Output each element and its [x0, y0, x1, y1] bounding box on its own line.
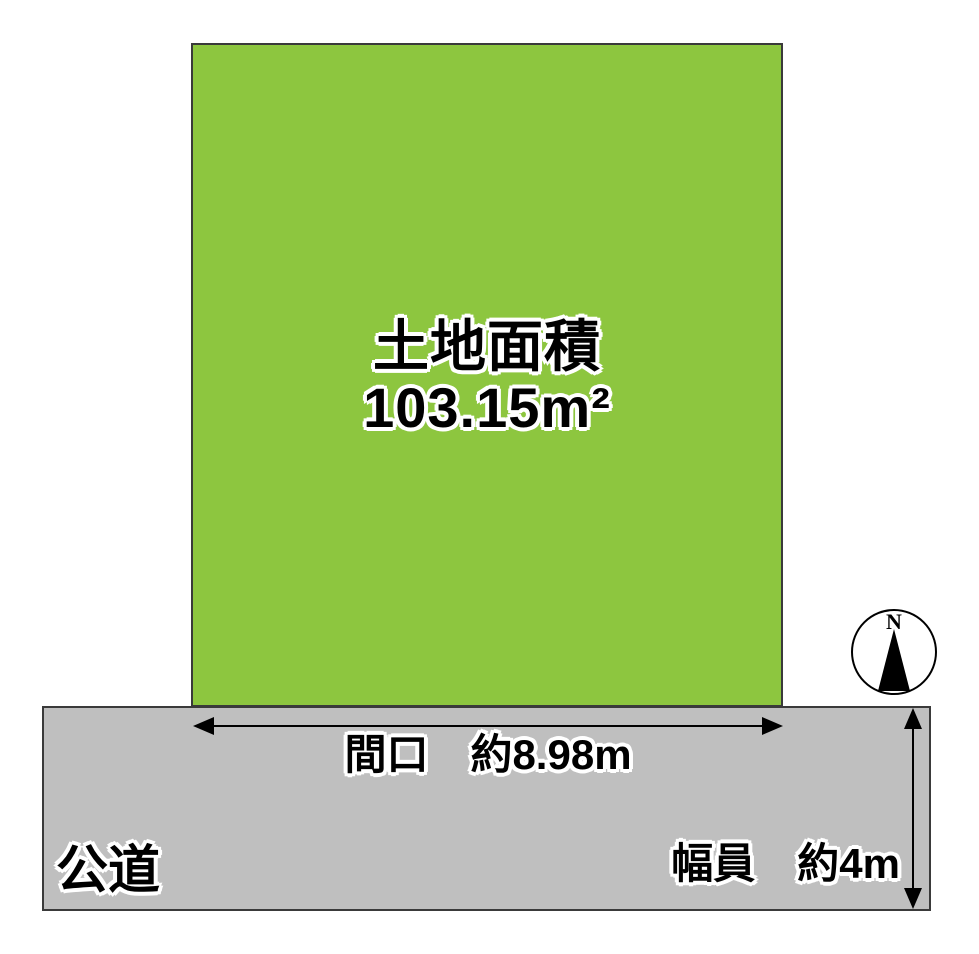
road-name-label: 公道	[56, 844, 160, 898]
land-area-title: 土地面積	[191, 316, 783, 377]
compass-north-label: N	[886, 609, 902, 634]
land-area-label: 土地面積 103.15m²	[191, 316, 783, 438]
compass-north-icon: N	[848, 605, 940, 697]
frontage-label: 間口 約8.98m	[193, 733, 783, 777]
land-plot-diagram: N 土地面積 103.15m² 間口 約8.98m 公道 幅員 約4m	[0, 0, 979, 954]
road-width-label: 幅員 約4m	[671, 842, 900, 886]
land-area-value: 103.15m²	[191, 377, 783, 438]
